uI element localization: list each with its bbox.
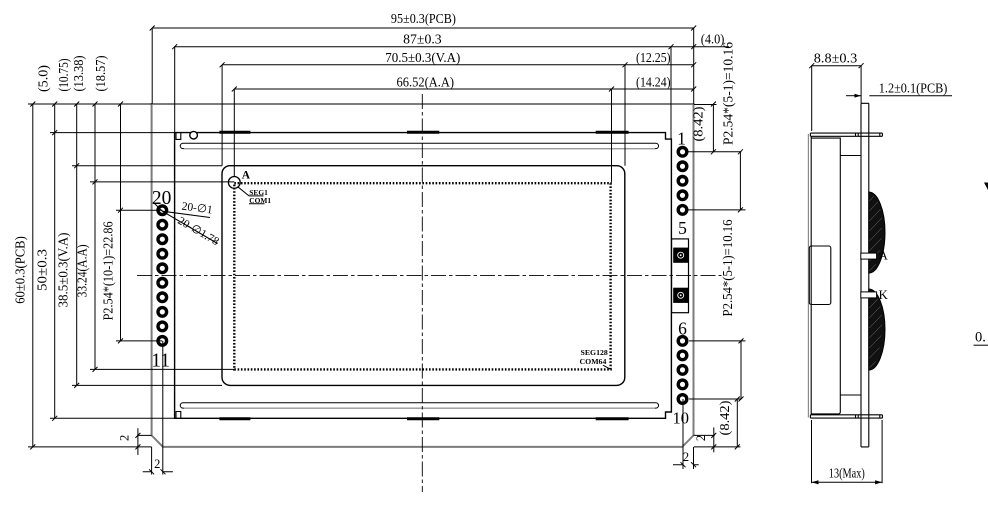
svg-text:(8.42): (8.42) <box>692 106 707 141</box>
svg-text:10: 10 <box>673 409 690 428</box>
svg-text:(5.0): (5.0) <box>36 65 51 92</box>
svg-text:87±0.3: 87±0.3 <box>403 33 442 48</box>
svg-text:38.5±0.3(V.A): 38.5±0.3(V.A) <box>57 232 72 307</box>
svg-text:1.2±0.1(PCB): 1.2±0.1(PCB) <box>879 82 948 97</box>
svg-text:(10.75): (10.75) <box>57 58 72 91</box>
svg-text:2: 2 <box>154 457 160 471</box>
svg-text:(8.42): (8.42) <box>718 400 733 435</box>
svg-text:66.52(A.A): 66.52(A.A) <box>397 76 455 91</box>
svg-text:P2.54*(10-1)=22.86: P2.54*(10-1)=22.86 <box>101 221 116 320</box>
svg-text:(18.57): (18.57) <box>94 55 109 91</box>
svg-text:20: 20 <box>152 188 172 209</box>
svg-text:8.8±0.3: 8.8±0.3 <box>814 52 858 67</box>
svg-text:P2.54*(5-1)=10.16: P2.54*(5-1)=10.16 <box>721 220 736 317</box>
svg-text:COM64: COM64 <box>580 357 607 366</box>
svg-text:A: A <box>242 170 251 182</box>
svg-text:2: 2 <box>117 435 131 441</box>
svg-text:5: 5 <box>678 218 687 238</box>
svg-text:SEG128: SEG128 <box>581 348 608 357</box>
svg-text:K: K <box>879 287 889 302</box>
svg-text:P2.54*(5-1)=10.16: P2.54*(5-1)=10.16 <box>722 42 737 145</box>
svg-text:(13.38): (13.38) <box>72 55 87 91</box>
svg-text:70.5±0.3(V.A): 70.5±0.3(V.A) <box>385 51 460 66</box>
svg-text:1: 1 <box>677 129 686 149</box>
svg-text:50±0.3: 50±0.3 <box>36 249 51 291</box>
svg-text:33.24(A.A): 33.24(A.A) <box>76 244 91 297</box>
svg-text:11: 11 <box>151 351 170 372</box>
svg-text:60±0.3(PCB): 60±0.3(PCB) <box>14 236 29 304</box>
svg-text:(12.25): (12.25) <box>636 51 671 66</box>
svg-text:COM1: COM1 <box>249 196 271 205</box>
svg-text:20-∅1.78: 20-∅1.78 <box>176 215 222 248</box>
svg-text:(14.24): (14.24) <box>636 76 671 91</box>
svg-text:2: 2 <box>683 450 689 464</box>
svg-text:6: 6 <box>678 319 687 339</box>
svg-text:2: 2 <box>694 435 708 441</box>
svg-text:95±0.3(PCB): 95±0.3(PCB) <box>391 12 456 27</box>
svg-text:A: A <box>879 248 889 263</box>
svg-text:13(Max): 13(Max) <box>829 467 865 482</box>
svg-text:0.: 0. <box>975 330 986 346</box>
